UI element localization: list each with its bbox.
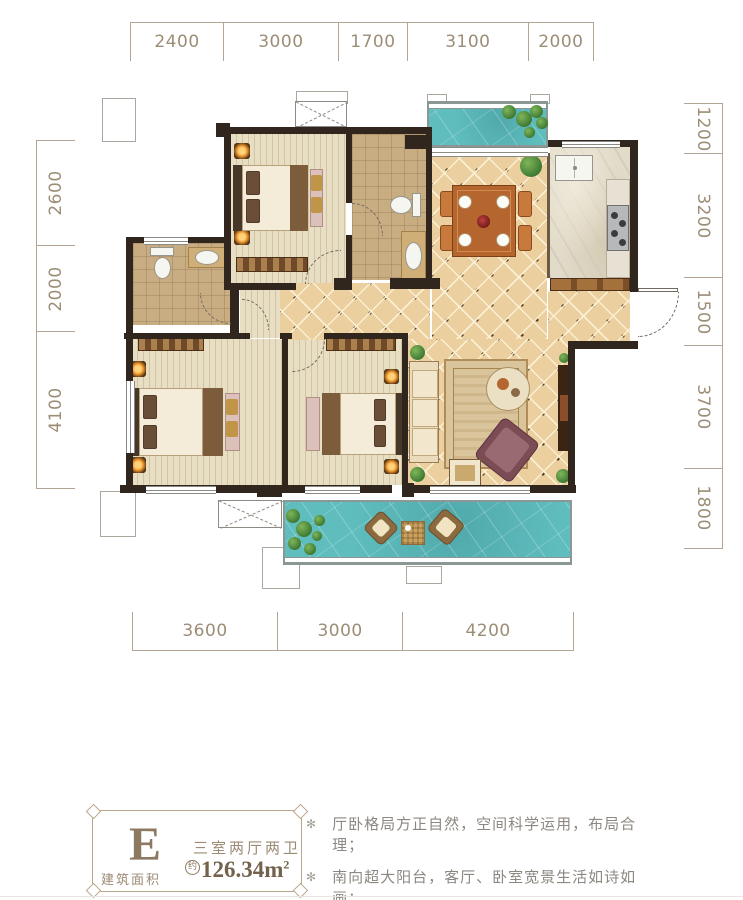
stove bbox=[607, 205, 629, 251]
dimension-label: 1200 bbox=[693, 106, 713, 151]
balcony-south bbox=[283, 500, 572, 565]
dining-chair bbox=[518, 225, 532, 251]
plate bbox=[496, 233, 510, 247]
dimension-segment: 4100 bbox=[37, 331, 75, 488]
plant bbox=[536, 117, 548, 129]
feature-list: ✻厅卧格局方正自然，空间科学运用，布局合理；✻南向超大阳台，客厅、卧室宽景生活如… bbox=[306, 814, 656, 900]
dimension-segment: 1700 bbox=[338, 23, 407, 61]
pillow bbox=[374, 399, 386, 421]
wall bbox=[124, 333, 250, 339]
dimension-segment: 2400 bbox=[130, 23, 223, 61]
bed-runner bbox=[203, 388, 223, 456]
dresser bbox=[326, 337, 396, 351]
flower-bullet-icon: ✻ bbox=[306, 814, 317, 835]
plant bbox=[520, 155, 542, 177]
wall-divider bbox=[547, 153, 550, 278]
exterior-ledge bbox=[406, 566, 442, 584]
plate bbox=[458, 233, 472, 247]
approx-circle-icon: 约 bbox=[185, 860, 200, 875]
pillow bbox=[143, 395, 157, 419]
dimension-label: 4200 bbox=[465, 621, 510, 641]
dimension-segment: 3000 bbox=[277, 612, 402, 650]
toilet-bowl bbox=[390, 196, 412, 214]
ruler-top: 24003000170031002000 bbox=[130, 22, 594, 61]
dining-chair bbox=[518, 191, 532, 217]
pillow bbox=[246, 199, 260, 223]
bed-runner bbox=[322, 393, 340, 455]
unit-badge: E 建筑面积 三室两厅两卫 约126.34m2 bbox=[92, 810, 302, 892]
wall bbox=[230, 288, 239, 335]
pillow bbox=[374, 425, 386, 447]
wall bbox=[224, 127, 231, 288]
dimension-segment: 3700 bbox=[684, 345, 722, 468]
sofa bbox=[409, 361, 439, 463]
toilet-tank bbox=[150, 247, 174, 256]
exterior-ledge bbox=[102, 98, 136, 142]
dresser bbox=[138, 337, 204, 351]
bench-cushion bbox=[226, 421, 238, 437]
wall bbox=[257, 485, 282, 497]
plant bbox=[410, 345, 425, 360]
kitchen-cabinet bbox=[550, 278, 630, 291]
dimension-label: 3700 bbox=[693, 384, 713, 429]
plant bbox=[296, 521, 312, 537]
plant bbox=[312, 531, 322, 541]
dimension-label: 1800 bbox=[693, 486, 713, 531]
wall bbox=[346, 127, 352, 203]
dimension-segment: 2000 bbox=[528, 23, 593, 61]
pillow bbox=[143, 425, 157, 449]
bench-cushion bbox=[311, 197, 322, 213]
wall bbox=[572, 341, 638, 349]
balcony-railing bbox=[429, 103, 546, 109]
window bbox=[126, 381, 135, 453]
sliding-door bbox=[430, 486, 530, 494]
feature-text: 厅卧格局方正自然，空间科学运用，布局合理； bbox=[332, 814, 656, 856]
entry-hall-floor bbox=[548, 291, 630, 341]
window bbox=[146, 486, 216, 494]
dimension-label: 3200 bbox=[693, 193, 713, 238]
wall-lamp bbox=[234, 229, 250, 245]
page-divider bbox=[0, 896, 743, 897]
window bbox=[432, 147, 548, 157]
bed bbox=[340, 393, 396, 455]
dresser bbox=[236, 257, 308, 272]
dimension-segment: 2000 bbox=[37, 245, 75, 331]
dimension-segment: 4200 bbox=[402, 612, 573, 650]
dimension-label: 2600 bbox=[46, 171, 66, 216]
plant bbox=[502, 105, 516, 119]
bench-cushion bbox=[226, 399, 238, 415]
corridor-floor bbox=[280, 283, 430, 340]
dimension-segment: 3000 bbox=[223, 23, 338, 61]
dimension-label: 3600 bbox=[182, 621, 227, 641]
wall bbox=[630, 140, 638, 292]
dimension-label: 3100 bbox=[445, 32, 490, 52]
dimension-label: 3000 bbox=[317, 621, 362, 641]
ac-platform-south bbox=[218, 500, 282, 528]
dimension-segment: 3600 bbox=[132, 612, 277, 650]
feature-item: ✻厅卧格局方正自然，空间科学运用，布局合理； bbox=[306, 814, 656, 856]
bench-cushion bbox=[311, 175, 322, 191]
side-chair bbox=[449, 459, 481, 487]
ruler-bottom: 360030004200 bbox=[132, 612, 574, 651]
wall bbox=[224, 283, 296, 290]
exterior-ledge bbox=[100, 491, 136, 537]
dimension-segment: 3200 bbox=[684, 153, 722, 277]
plant bbox=[524, 127, 535, 138]
wall bbox=[405, 135, 427, 149]
floorplan bbox=[100, 85, 685, 595]
unit-letter: E bbox=[129, 821, 161, 869]
round-table bbox=[486, 367, 530, 411]
window bbox=[562, 141, 620, 148]
wall bbox=[402, 333, 408, 493]
floorplan-page: 24003000170031002000 260020004100 120032… bbox=[0, 0, 743, 900]
plant bbox=[304, 543, 316, 555]
window bbox=[144, 237, 188, 245]
wall-lamp bbox=[384, 369, 399, 384]
dimension-segment: 1500 bbox=[684, 277, 722, 345]
table-centerpiece bbox=[477, 215, 490, 228]
unit-layout-text: 三室两厅两卫 bbox=[193, 837, 301, 858]
pillow bbox=[246, 171, 260, 195]
plate bbox=[496, 195, 510, 209]
wall-lamp bbox=[384, 459, 399, 474]
bed-headboard bbox=[233, 165, 242, 231]
wall-lamp bbox=[234, 143, 250, 159]
wall bbox=[126, 237, 133, 493]
sink bbox=[405, 242, 422, 270]
plate bbox=[458, 195, 472, 209]
ruler-right: 12003200150037001800 bbox=[684, 103, 723, 549]
dimension-label: 3000 bbox=[258, 32, 303, 52]
dimension-label: 2400 bbox=[154, 32, 199, 52]
wall bbox=[282, 339, 288, 489]
plant bbox=[286, 509, 300, 523]
plant bbox=[410, 467, 425, 482]
ruler-left: 260020004100 bbox=[36, 140, 75, 489]
dimension-label: 2000 bbox=[46, 266, 66, 311]
balcony-railing bbox=[285, 557, 570, 563]
plant bbox=[288, 537, 301, 550]
plant bbox=[314, 515, 325, 526]
kitchen-sink bbox=[555, 155, 593, 181]
bed-bench bbox=[306, 397, 320, 451]
entry-door-arc bbox=[638, 292, 679, 337]
area-label: 建筑面积 bbox=[101, 869, 161, 888]
wall bbox=[346, 235, 352, 283]
dimension-segment: 1200 bbox=[684, 103, 722, 153]
area-value-row: 约126.34m2 bbox=[185, 857, 289, 883]
dimension-segment: 1800 bbox=[684, 468, 722, 548]
dimension-label: 1700 bbox=[350, 32, 395, 52]
toilet-bowl bbox=[154, 257, 171, 279]
window bbox=[305, 486, 360, 494]
dimension-segment: 3100 bbox=[407, 23, 528, 61]
balcony-table bbox=[401, 521, 425, 545]
ac-platform-north bbox=[295, 101, 347, 127]
dimension-label: 4100 bbox=[46, 387, 66, 432]
flower-bullet-icon: ✻ bbox=[306, 867, 317, 888]
dimension-segment: 2600 bbox=[37, 140, 75, 245]
wall bbox=[568, 341, 575, 493]
dimension-label: 2000 bbox=[538, 32, 583, 52]
bed-runner bbox=[290, 165, 308, 231]
wall bbox=[224, 127, 432, 134]
wall bbox=[324, 333, 404, 339]
badge-corner-ornament bbox=[86, 804, 102, 820]
wall bbox=[390, 278, 440, 289]
area-value: 126.34m2 bbox=[201, 857, 289, 882]
toilet-tank bbox=[412, 193, 421, 217]
sink bbox=[195, 250, 219, 265]
dimension-label: 1500 bbox=[693, 289, 713, 334]
